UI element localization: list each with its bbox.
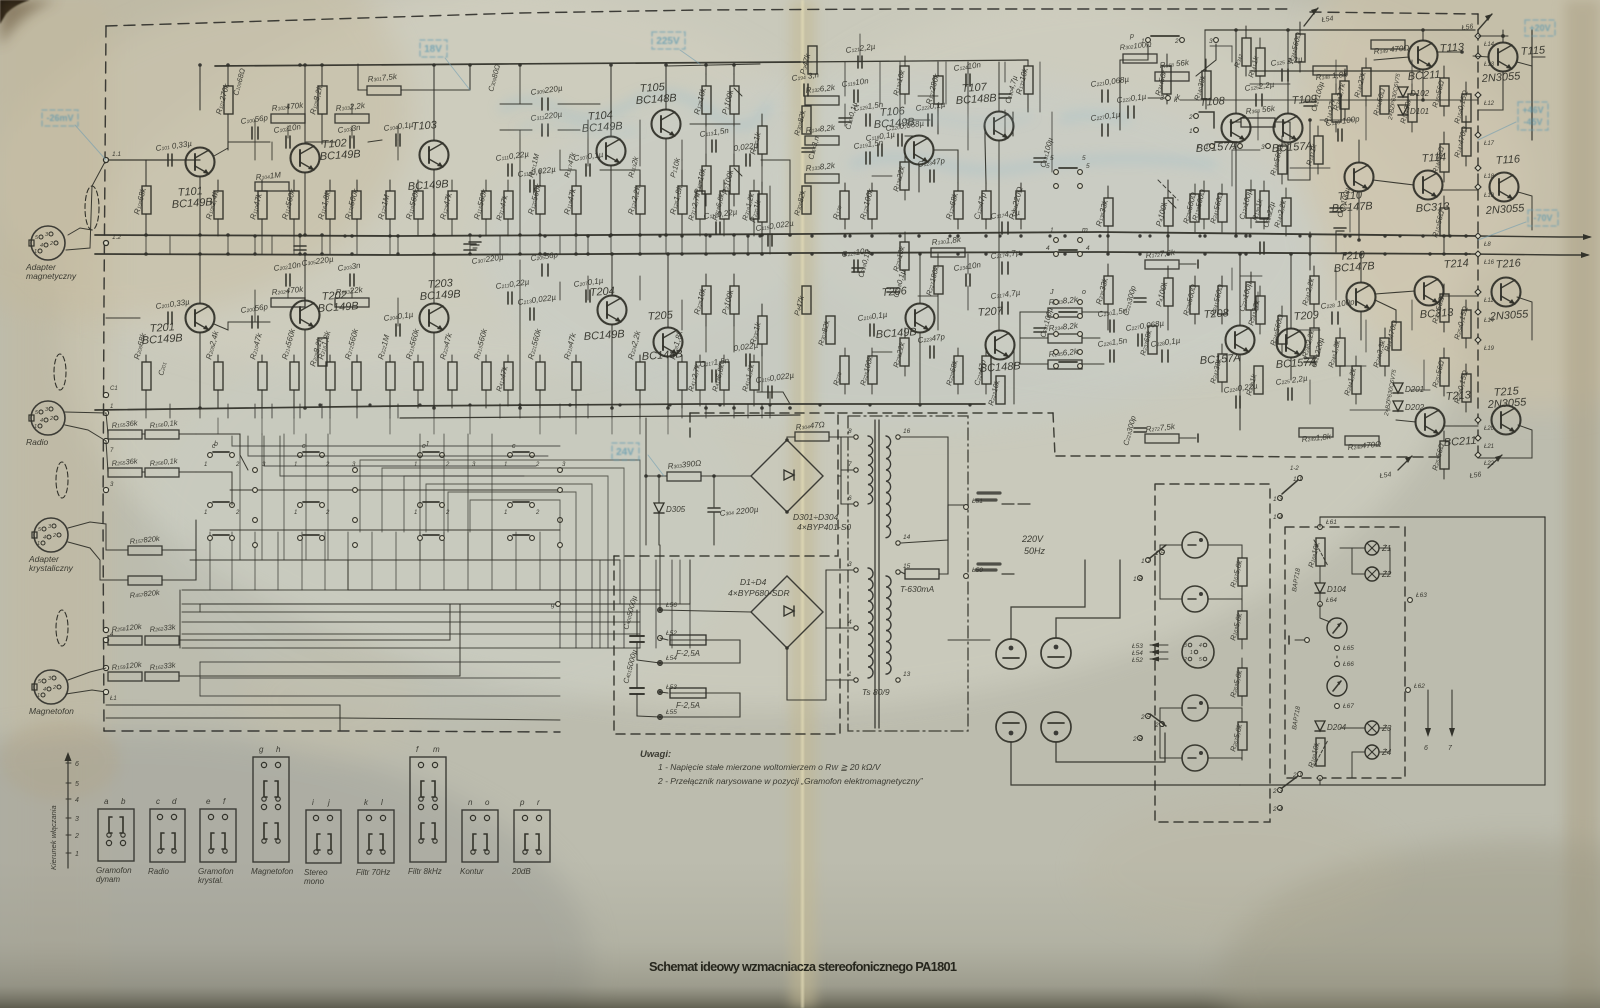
- svg-text:b: b: [214, 441, 218, 448]
- svg-text:T207: T207: [977, 305, 1004, 319]
- svg-text:C1: C1: [110, 386, 118, 392]
- svg-text:2-5: 2-5: [1140, 714, 1151, 721]
- svg-text:dynam: dynam: [96, 875, 120, 884]
- svg-text:1-7: 1-7: [1141, 558, 1151, 565]
- svg-text:F-2,5A: F-2,5A: [676, 701, 700, 710]
- svg-text:14: 14: [903, 534, 911, 541]
- svg-text:6: 6: [1424, 745, 1428, 752]
- svg-text:2 - Przełącznik narysowane w p: 2 - Przełącznik narysowane w pozycji „Gr…: [657, 776, 924, 786]
- svg-text:2: 2: [235, 510, 240, 516]
- svg-text:g: g: [259, 745, 264, 754]
- svg-text:7: 7: [848, 461, 852, 468]
- svg-text:2: 2: [445, 462, 450, 468]
- svg-text:k: k: [1174, 97, 1178, 104]
- svg-text:20dB: 20dB: [511, 867, 531, 876]
- svg-text:Gramofon: Gramofon: [96, 866, 132, 875]
- svg-text:4×BYP680-SDR: 4×BYP680-SDR: [728, 588, 790, 598]
- svg-text:2: 2: [325, 462, 330, 468]
- svg-text:5: 5: [1199, 657, 1202, 663]
- svg-text:2: 2: [535, 510, 540, 516]
- svg-text:1: 1: [414, 510, 417, 516]
- svg-text:Ł66: Ł66: [1343, 661, 1354, 668]
- svg-text:Filtr 70Hz: Filtr 70Hz: [356, 868, 390, 877]
- svg-text:16: 16: [903, 428, 911, 435]
- svg-text:r: r: [537, 798, 540, 807]
- svg-text:Ł55: Ł55: [666, 709, 677, 716]
- svg-text:4: 4: [75, 797, 79, 804]
- svg-text:D305: D305: [666, 505, 686, 514]
- svg-text:1 - Napięcie stałe mierzone wo: 1 - Napięcie stałe mierzone woltomierzem…: [658, 762, 882, 772]
- svg-text:1: 1: [34, 249, 37, 255]
- svg-text:p: p: [1129, 33, 1134, 40]
- svg-text:T214: T214: [1443, 257, 1469, 271]
- svg-text:1: 1: [294, 462, 297, 468]
- svg-text:a: a: [104, 797, 109, 806]
- svg-text:Ł19: Ł19: [1484, 193, 1495, 199]
- svg-text:6: 6: [75, 761, 79, 768]
- svg-text:D301÷D304: D301÷D304: [793, 512, 839, 522]
- svg-text:18V: 18V: [424, 44, 442, 55]
- svg-text:D202: D202: [1405, 403, 1425, 412]
- svg-text:4: 4: [40, 418, 43, 424]
- svg-text:4: 4: [40, 243, 43, 249]
- svg-text:Uwagi:: Uwagi:: [640, 749, 671, 760]
- svg-text:Kontur: Kontur: [460, 867, 484, 876]
- svg-text:Ł16: Ł16: [1484, 260, 1495, 266]
- svg-text:mono: mono: [304, 877, 325, 886]
- svg-text:2-8: 2-8: [1132, 736, 1143, 743]
- svg-text:4: 4: [43, 687, 46, 693]
- svg-text:Ł8: Ł8: [1484, 242, 1491, 248]
- svg-text:3: 3: [1184, 643, 1187, 649]
- svg-text:Ł14: Ł14: [1484, 42, 1495, 48]
- svg-text:m: m: [1082, 227, 1088, 234]
- svg-text:Ts 80/9: Ts 80/9: [862, 687, 890, 697]
- svg-text:1-3: 1-3: [1273, 496, 1283, 503]
- svg-text:3: 3: [75, 816, 79, 823]
- svg-text:o: o: [1082, 289, 1086, 296]
- svg-text:D1÷D4: D1÷D4: [740, 577, 767, 587]
- svg-text:220V: 220V: [1021, 534, 1044, 544]
- svg-text:Schemat ideowy wzmacniacza ste: Schemat ideowy wzmacniacza stereofoniczn…: [649, 959, 957, 974]
- svg-text:Filtr 8kHz: Filtr 8kHz: [408, 867, 442, 876]
- svg-text:Ł12: Ł12: [1484, 101, 1495, 107]
- svg-text:+20V: +20V: [1529, 23, 1550, 33]
- svg-text:-70V: -70V: [1533, 213, 1552, 223]
- svg-text:2: 2: [1183, 657, 1187, 663]
- svg-text:Ł1: Ł1: [110, 696, 117, 702]
- svg-text:5: 5: [1086, 163, 1090, 170]
- svg-text:Radio: Radio: [26, 437, 48, 447]
- svg-text:4: 4: [848, 619, 852, 626]
- svg-text:Ł13: Ł13: [1484, 62, 1495, 68]
- svg-text:1: 1: [1189, 128, 1193, 135]
- svg-text:Gramofon: Gramofon: [198, 867, 234, 876]
- svg-text:1: 1: [294, 510, 297, 516]
- svg-text:3: 3: [848, 561, 852, 568]
- svg-text:Ł53: Ł53: [666, 684, 677, 691]
- svg-text:1: 1: [204, 510, 207, 516]
- svg-text:m: m: [433, 745, 440, 754]
- svg-text:Magnetofon: Magnetofon: [29, 706, 74, 716]
- svg-text:i: i: [312, 798, 314, 807]
- svg-text:3: 3: [1209, 38, 1213, 45]
- svg-text:Ł62: Ł62: [1414, 683, 1425, 690]
- svg-text:1: 1: [110, 404, 113, 410]
- svg-text:24V: 24V: [616, 447, 634, 458]
- svg-text:4: 4: [1046, 245, 1050, 252]
- svg-text:T116: T116: [1495, 153, 1521, 167]
- svg-text:T115: T115: [1520, 44, 1546, 58]
- svg-text:1: 1: [37, 541, 40, 547]
- svg-text:2: 2: [49, 416, 53, 422]
- svg-text:2-4: 2-4: [1272, 806, 1283, 813]
- svg-text:2: 2: [1174, 38, 1179, 45]
- svg-text:F-2,5A: F-2,5A: [676, 649, 700, 658]
- svg-text:1-4: 1-4: [1273, 514, 1283, 521]
- svg-text:magnetyczny: magnetyczny: [26, 271, 77, 281]
- svg-text:-26mV: -26mV: [46, 113, 73, 123]
- svg-text:6: 6: [848, 495, 852, 502]
- svg-text:T-630mA: T-630mA: [900, 584, 935, 594]
- svg-text:Ł65: Ł65: [1343, 645, 1354, 652]
- svg-text:2: 2: [445, 510, 450, 516]
- svg-text:T216: T216: [1495, 257, 1522, 271]
- svg-text:Ł54: Ł54: [666, 655, 677, 662]
- svg-text:1: 1: [504, 462, 507, 468]
- svg-text:5: 5: [1082, 155, 1086, 162]
- svg-text:Ł63: Ł63: [1416, 592, 1427, 599]
- svg-text:13: 13: [903, 671, 911, 678]
- svg-text:1.2: 1.2: [112, 234, 121, 241]
- svg-text:krystaliczny: krystaliczny: [29, 563, 74, 573]
- svg-text:T108: T108: [1199, 95, 1226, 109]
- svg-text:e: e: [206, 797, 211, 806]
- svg-text:1-8: 1-8: [1133, 576, 1143, 583]
- svg-text:Kierunek włączania: Kierunek włączania: [49, 805, 58, 870]
- svg-text:T205: T205: [647, 309, 674, 323]
- svg-text:5: 5: [75, 781, 79, 788]
- svg-text:1: 1: [1190, 650, 1193, 656]
- svg-text:1: 1: [504, 510, 507, 516]
- svg-text:T204: T204: [589, 285, 615, 299]
- svg-text:1.1: 1.1: [112, 151, 121, 158]
- svg-text:n: n: [468, 798, 473, 807]
- svg-text:8: 8: [848, 428, 852, 435]
- svg-text:+46V: +46V: [1522, 105, 1543, 115]
- svg-text:Ł67: Ł67: [1343, 703, 1354, 710]
- svg-text:Radio: Radio: [148, 867, 169, 876]
- svg-text:2: 2: [52, 533, 56, 539]
- svg-text:2-3: 2-3: [1272, 788, 1283, 795]
- svg-text:Ł52: Ł52: [1132, 657, 1143, 664]
- svg-text:1: 1: [1050, 227, 1054, 234]
- svg-text:D201: D201: [1405, 385, 1424, 394]
- svg-text:T209: T209: [1293, 309, 1319, 323]
- svg-text:2: 2: [1188, 114, 1193, 121]
- svg-text:c: c: [512, 443, 516, 450]
- svg-text:h: h: [276, 745, 281, 754]
- svg-text:Ł19: Ł19: [1484, 346, 1495, 352]
- svg-text:Ł21: Ł21: [1484, 444, 1494, 450]
- svg-text:Ł18: Ł18: [1484, 174, 1495, 180]
- svg-text:1: 1: [37, 693, 40, 699]
- svg-text:1: 1: [848, 671, 852, 678]
- svg-text:50Hz: 50Hz: [1024, 546, 1046, 556]
- svg-text:Ł61: Ł61: [1326, 519, 1337, 526]
- svg-text:4: 4: [1199, 643, 1202, 649]
- svg-text:2: 2: [235, 462, 240, 468]
- svg-text:2: 2: [535, 462, 540, 468]
- svg-text:3: 3: [1261, 144, 1265, 151]
- svg-text:krystal.: krystal.: [198, 876, 223, 885]
- svg-text:-45V: -45V: [1523, 117, 1542, 127]
- svg-text:225V: 225V: [656, 36, 680, 47]
- svg-text:Stereo: Stereo: [304, 868, 328, 877]
- svg-text:j: j: [327, 798, 330, 807]
- svg-text:c: c: [156, 797, 160, 806]
- svg-text:g: g: [551, 602, 555, 609]
- svg-text:1: 1: [75, 851, 79, 858]
- svg-text:D104: D104: [1327, 585, 1347, 594]
- svg-text:Magnetofon: Magnetofon: [251, 867, 294, 876]
- svg-text:1: 1: [204, 462, 207, 468]
- svg-text:Ł54: Ł54: [1132, 650, 1143, 657]
- svg-text:l: l: [381, 798, 383, 807]
- svg-text:1: 1: [34, 424, 37, 430]
- svg-text:4: 4: [43, 535, 46, 541]
- svg-text:p: p: [519, 798, 525, 807]
- svg-text:1: 1: [414, 462, 417, 468]
- svg-text:2: 2: [49, 241, 53, 247]
- svg-text:2: 2: [325, 510, 330, 516]
- svg-text:1-2: 1-2: [1290, 466, 1299, 472]
- svg-text:d: d: [172, 797, 177, 806]
- svg-text:2: 2: [74, 833, 79, 840]
- svg-text:4: 4: [1086, 245, 1090, 252]
- svg-text:4×BYP401-S0: 4×BYP401-S0: [797, 522, 851, 532]
- svg-text:c: c: [302, 443, 306, 450]
- svg-text:Ł53: Ł53: [1132, 643, 1143, 650]
- svg-text:5: 5: [1046, 163, 1050, 170]
- svg-text:1-1: 1-1: [1293, 476, 1303, 483]
- svg-text:J: J: [1049, 289, 1054, 296]
- svg-text:J: J: [424, 441, 429, 448]
- svg-text:Ł17: Ł17: [1484, 141, 1495, 147]
- svg-text:Ł64: Ł64: [1326, 597, 1337, 604]
- svg-text:D101: D101: [1410, 107, 1429, 116]
- svg-text:2: 2: [52, 685, 56, 691]
- svg-text:b: b: [121, 797, 126, 806]
- svg-text:o: o: [485, 798, 490, 807]
